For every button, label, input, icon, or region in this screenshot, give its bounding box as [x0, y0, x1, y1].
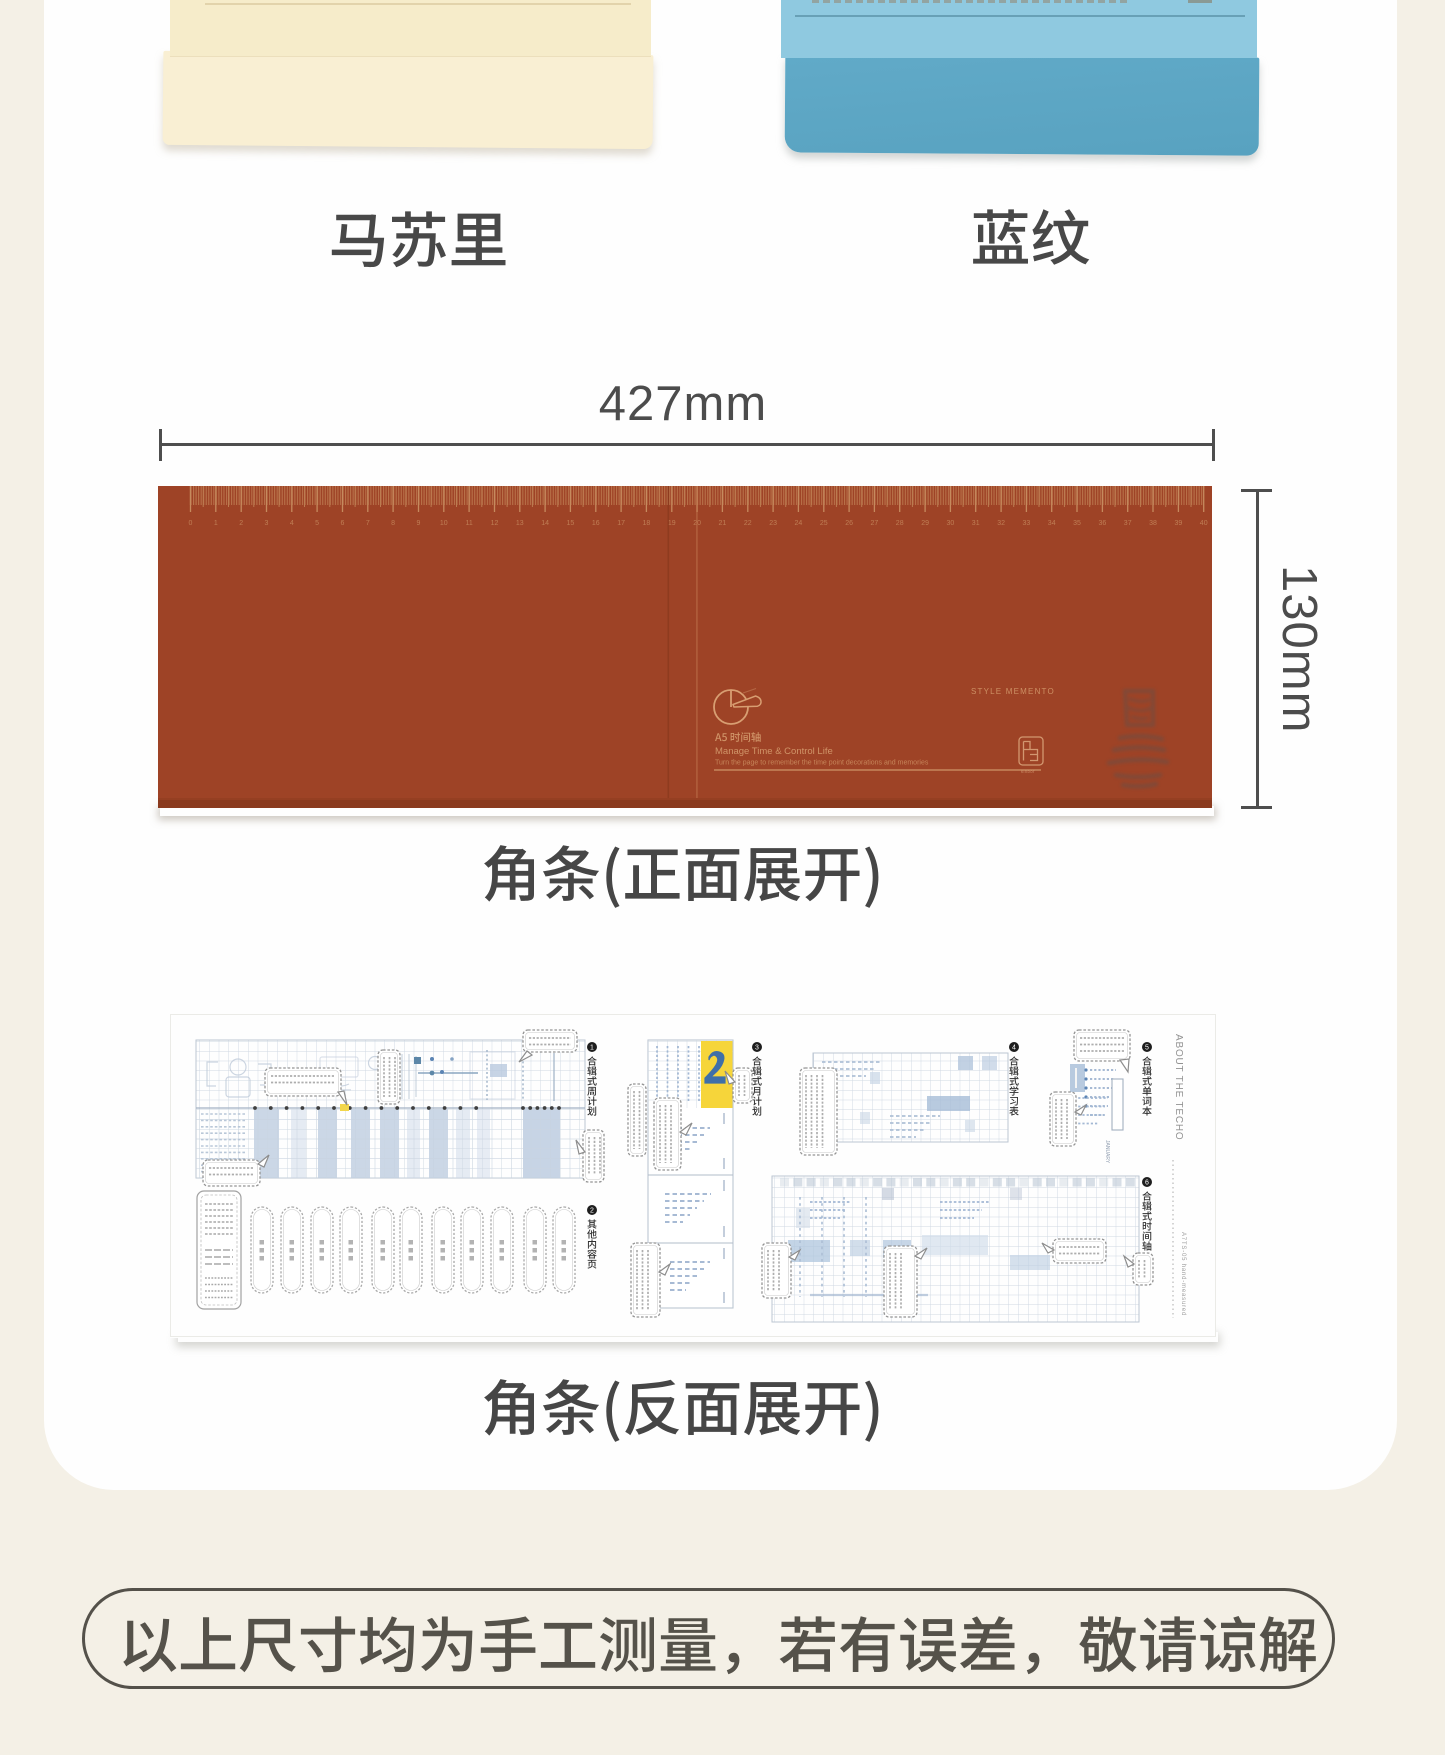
svg-text:14: 14: [541, 520, 549, 527]
svg-text:40: 40: [1200, 520, 1208, 527]
svg-text:8: 8: [391, 520, 395, 527]
svg-text:kinbor: kinbor: [1021, 769, 1035, 774]
svg-text:32: 32: [997, 520, 1005, 527]
svg-text:34: 34: [1048, 520, 1056, 527]
svg-text:22: 22: [744, 520, 752, 527]
svg-text:STYLE MEMENTO: STYLE MEMENTO: [971, 687, 1055, 696]
svg-text:2: 2: [239, 520, 243, 527]
svg-text:4: 4: [1012, 1045, 1016, 1052]
svg-text:0: 0: [189, 520, 193, 527]
svg-text:38: 38: [1149, 520, 1157, 527]
svg-text:11: 11: [465, 520, 472, 527]
svg-text:6: 6: [1145, 1180, 1149, 1187]
svg-text:15: 15: [567, 520, 575, 527]
svg-text:3: 3: [265, 520, 269, 527]
svg-text:Turn the page to remember the: Turn the page to remember the time point…: [715, 760, 929, 767]
svg-text:27: 27: [871, 520, 879, 527]
svg-text:3: 3: [755, 1045, 759, 1052]
svg-text:25: 25: [820, 520, 828, 527]
svg-text:2: 2: [590, 1208, 594, 1215]
svg-text:26: 26: [845, 520, 853, 527]
svg-text:35: 35: [1073, 520, 1081, 527]
svg-text:10: 10: [440, 520, 448, 527]
svg-text:6: 6: [341, 520, 345, 527]
svg-text:A7TS-05 hand-measured: A7TS-05 hand-measured: [1180, 1232, 1186, 1316]
svg-text:Manage Time & Control Life: Manage Time & Control Life: [715, 746, 833, 757]
svg-text:5: 5: [315, 520, 319, 527]
svg-text:28: 28: [896, 520, 904, 527]
svg-text:29: 29: [921, 520, 929, 527]
svg-text:18: 18: [643, 520, 651, 527]
svg-text:16: 16: [592, 520, 600, 527]
svg-text:ABOUT THE TECHO: ABOUT THE TECHO: [1173, 1034, 1184, 1140]
svg-text:30: 30: [947, 520, 955, 527]
svg-text:17: 17: [617, 520, 625, 527]
svg-text:JANUARY: JANUARY: [1104, 1140, 1110, 1164]
svg-text:4: 4: [290, 520, 294, 527]
svg-text:427mm: 427mm: [599, 377, 767, 431]
svg-text:24: 24: [795, 520, 803, 527]
svg-text:37: 37: [1124, 520, 1132, 527]
svg-text:1: 1: [590, 1045, 594, 1052]
svg-text:7: 7: [366, 520, 370, 527]
svg-text:33: 33: [1023, 520, 1031, 527]
svg-text:31: 31: [972, 520, 980, 527]
svg-text:12: 12: [491, 520, 499, 527]
svg-text:1: 1: [214, 520, 218, 527]
svg-text:13: 13: [516, 520, 524, 527]
svg-text:5: 5: [1145, 1045, 1149, 1052]
svg-text:21: 21: [719, 520, 727, 527]
svg-text:39: 39: [1175, 520, 1183, 527]
svg-text:130mm: 130mm: [1272, 565, 1326, 733]
svg-text:9: 9: [417, 520, 421, 527]
svg-text:23: 23: [769, 520, 777, 527]
svg-text:36: 36: [1099, 520, 1107, 527]
